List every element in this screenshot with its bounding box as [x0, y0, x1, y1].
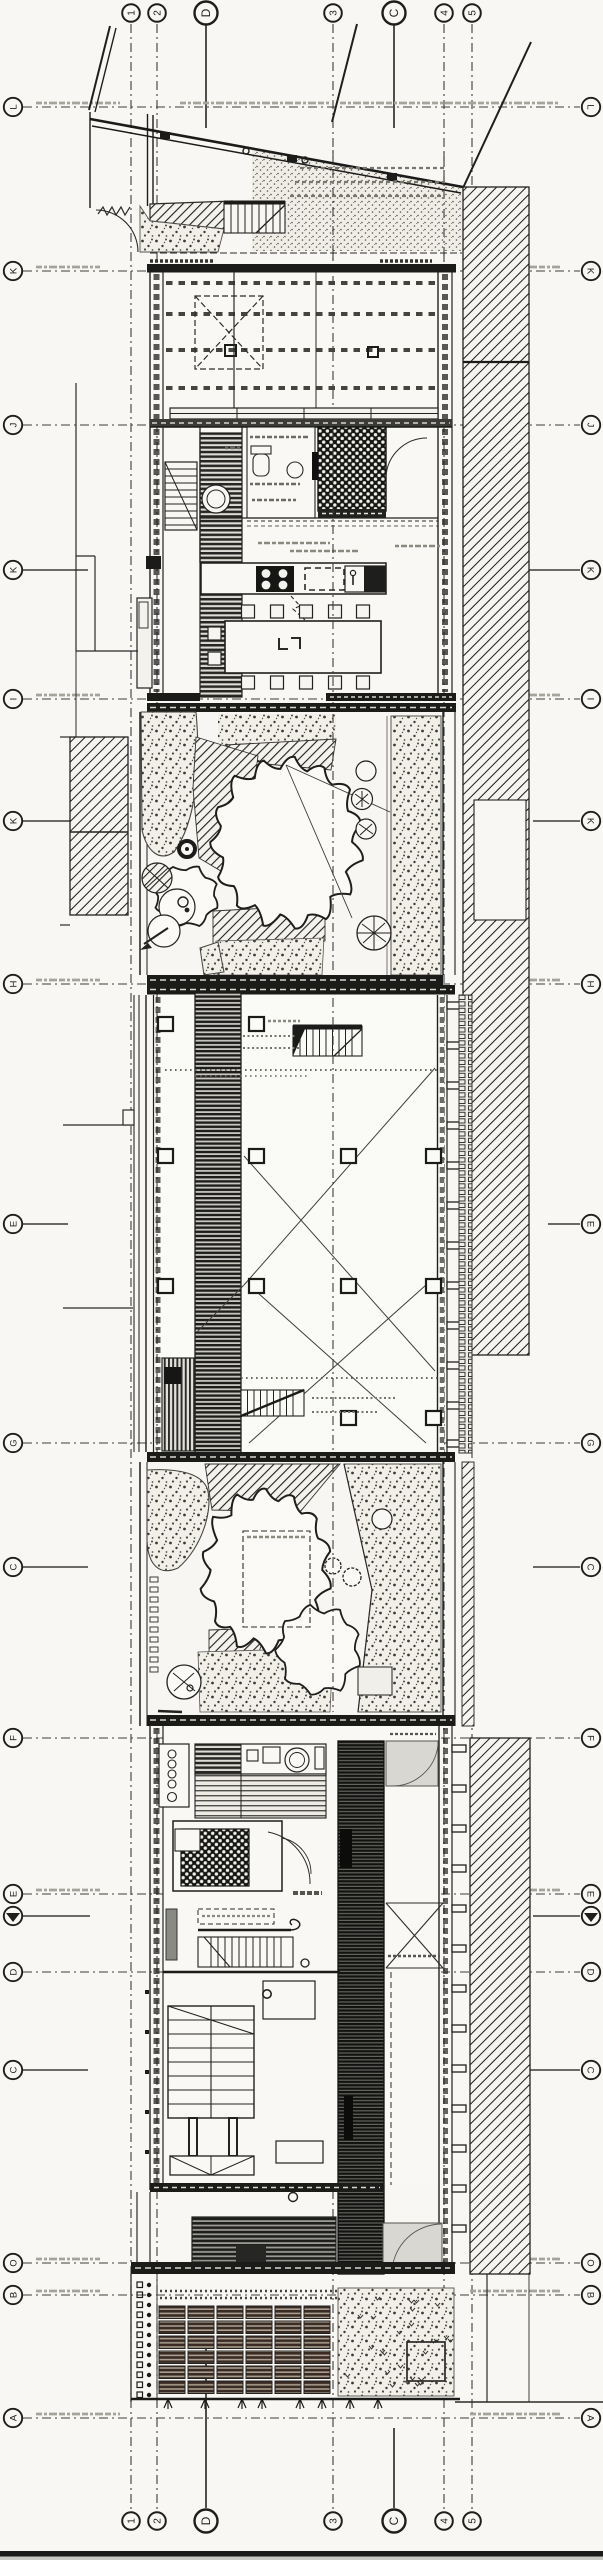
- svg-text:E: E: [9, 1221, 20, 1227]
- svg-text:2: 2: [153, 2518, 164, 2524]
- svg-text:C: C: [9, 1563, 20, 1570]
- svg-text:3: 3: [329, 10, 340, 16]
- svg-text:D: D: [199, 2516, 213, 2525]
- svg-text:F: F: [9, 1735, 20, 1741]
- svg-text:1: 1: [127, 2518, 138, 2524]
- svg-text:B: B: [9, 2292, 20, 2298]
- svg-text:C: C: [585, 2067, 596, 2074]
- svg-text:E: E: [585, 1221, 596, 1227]
- svg-text:5: 5: [468, 2518, 479, 2524]
- svg-text:I: I: [585, 698, 596, 701]
- svg-text:2: 2: [153, 10, 164, 16]
- svg-text:K: K: [9, 267, 20, 274]
- svg-text:D: D: [199, 8, 213, 17]
- svg-text:E: E: [9, 1891, 20, 1897]
- svg-text:A: A: [9, 2414, 20, 2421]
- svg-text:F: F: [585, 1735, 596, 1741]
- svg-text:E: E: [585, 1891, 596, 1897]
- svg-text:5: 5: [468, 10, 479, 16]
- svg-text:4: 4: [440, 10, 451, 16]
- svg-text:K: K: [9, 566, 20, 573]
- svg-text:D: D: [9, 1968, 20, 1975]
- svg-text:H: H: [9, 980, 20, 987]
- svg-text:O: O: [9, 2259, 20, 2266]
- svg-text:B: B: [585, 2292, 596, 2298]
- svg-text:3: 3: [329, 2518, 340, 2524]
- svg-text:J: J: [585, 423, 596, 428]
- svg-text:1: 1: [127, 10, 138, 16]
- svg-text:K: K: [585, 268, 596, 275]
- svg-text:4: 4: [440, 2518, 451, 2524]
- svg-text:C: C: [585, 1564, 596, 1571]
- svg-text:G: G: [585, 1439, 596, 1446]
- svg-text:A: A: [585, 2415, 596, 2422]
- svg-text:O: O: [585, 2259, 596, 2266]
- svg-text:C: C: [9, 2066, 20, 2073]
- svg-text:K: K: [585, 818, 596, 825]
- svg-text:C: C: [387, 2516, 401, 2525]
- svg-text:K: K: [9, 817, 20, 824]
- svg-text:K: K: [585, 567, 596, 574]
- svg-text:D: D: [585, 1969, 596, 1976]
- svg-text:L: L: [585, 104, 596, 109]
- svg-text:J: J: [9, 422, 20, 427]
- svg-text:C: C: [387, 8, 401, 17]
- svg-text:L: L: [9, 104, 20, 109]
- svg-text:H: H: [585, 981, 596, 988]
- svg-text:G: G: [9, 1439, 20, 1446]
- svg-text:I: I: [9, 698, 20, 701]
